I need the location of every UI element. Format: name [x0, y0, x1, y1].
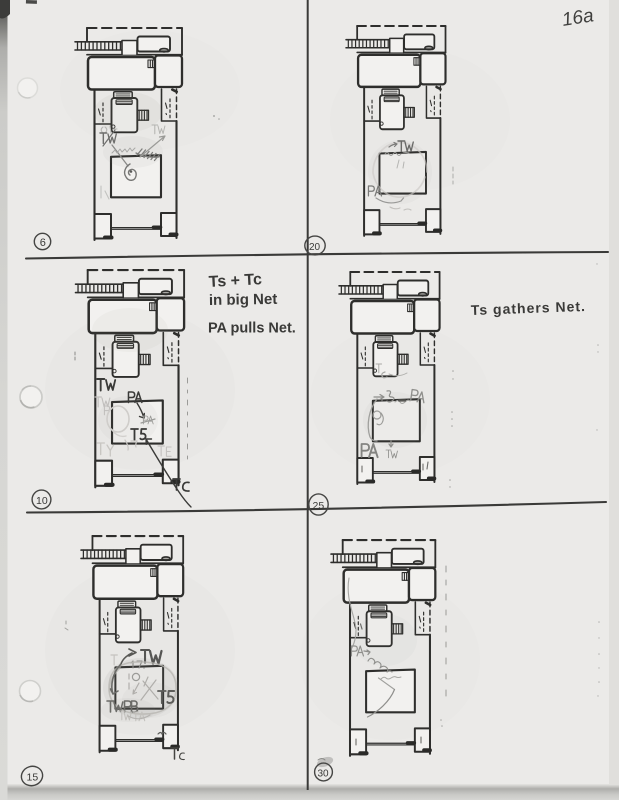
svg-text:6: 6	[40, 237, 46, 249]
svg-text:10: 10	[36, 495, 48, 507]
svg-text:in big Net: in big Net	[209, 291, 278, 309]
svg-text:Ts + Tc: Ts + Tc	[208, 271, 262, 291]
svg-text:25: 25	[313, 500, 325, 512]
svg-text:30: 30	[318, 768, 330, 779]
svg-text:20: 20	[309, 242, 321, 253]
svg-text:15: 15	[27, 771, 39, 783]
svg-text:PA pulls Net.: PA pulls Net.	[208, 321, 296, 337]
